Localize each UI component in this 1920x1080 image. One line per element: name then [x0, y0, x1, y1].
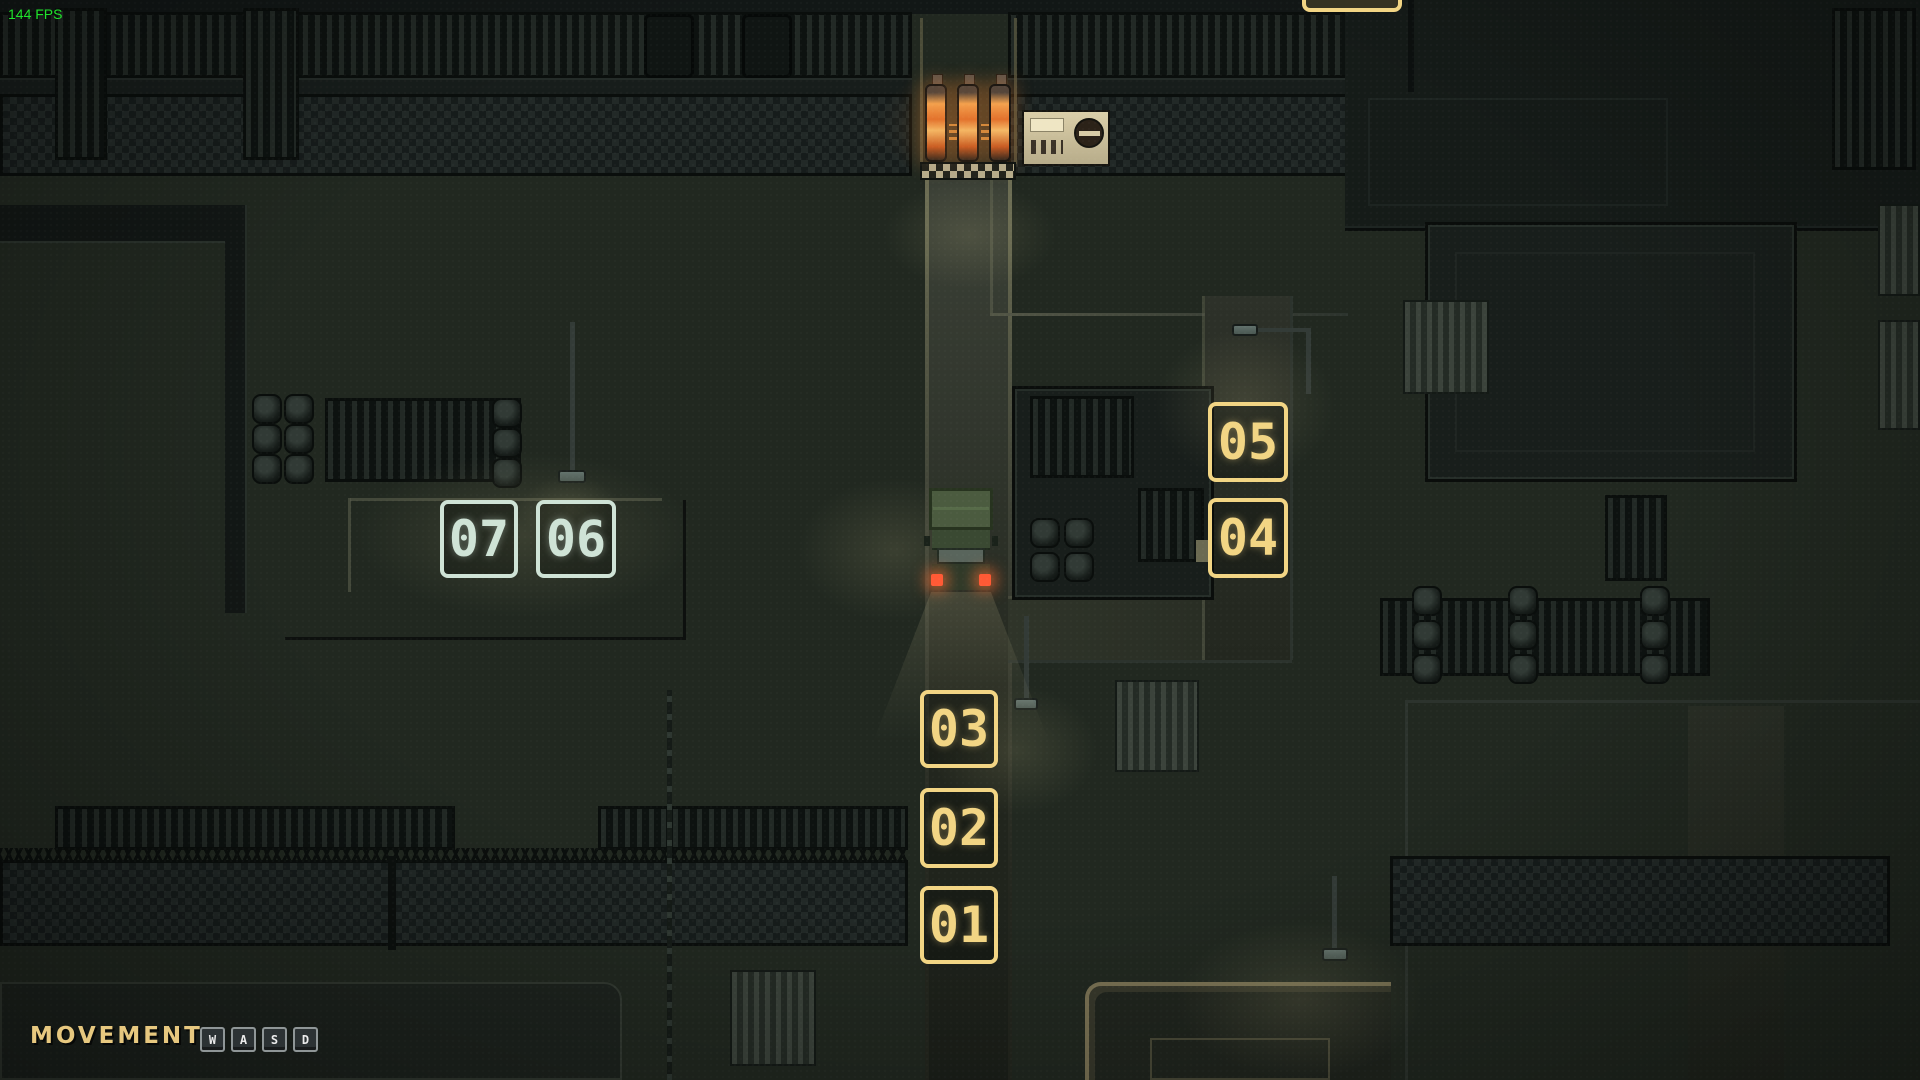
waypoint-label: 03: [929, 700, 989, 758]
top-fence-right: [1008, 12, 1348, 78]
truck-canopy-rib: [933, 507, 989, 510]
storage-cage: [1390, 856, 1890, 946]
barrel: [252, 454, 282, 484]
waypoint-label: 06: [546, 510, 606, 568]
utility-pole: [667, 690, 672, 1080]
barrel: [1064, 518, 1094, 548]
barrel: [252, 424, 282, 454]
barrel: [1640, 620, 1670, 650]
waypoint-marker-03: 03: [920, 690, 998, 768]
waypoint-marker-05: 05: [1208, 402, 1288, 482]
topright-inner-roof: [1368, 98, 1668, 206]
game-viewport[interactable]: 01 02 03 04 05 06 07 144 FPS MOVEMENT W …: [0, 0, 1920, 1080]
waypoint-label: 02: [929, 799, 989, 857]
right-building-inner: [1455, 252, 1755, 452]
corrugated-panel: [1878, 320, 1920, 430]
barrel: [284, 424, 314, 454]
barrel: [1640, 654, 1670, 684]
waypoint-marker-07: 07: [440, 500, 518, 578]
barrel: [1412, 620, 1442, 650]
barrel: [252, 394, 282, 424]
barrel: [1508, 620, 1538, 650]
top-chainlink-left: [0, 94, 912, 176]
bottom-fence: [598, 806, 908, 850]
truck-mirror: [992, 536, 998, 546]
fence-clamp-post: [644, 14, 694, 78]
truck-windshield: [937, 548, 985, 564]
corrugated-panel: [1878, 204, 1920, 296]
fence-post: [388, 856, 396, 950]
barrel: [1412, 654, 1442, 684]
pipe: [1408, 0, 1414, 92]
left-wall-vertical: [225, 205, 247, 613]
barrel: [1508, 586, 1538, 616]
topright-chimney: [1832, 8, 1916, 170]
truck-light-icon: [931, 574, 943, 586]
key-w: W: [200, 1027, 225, 1052]
barrel: [1640, 586, 1670, 616]
waypoint-label: 05: [1218, 413, 1278, 471]
right-yard-edge: [1407, 700, 1920, 703]
waypoint-marker-01: 01: [920, 886, 998, 964]
bottom-chainlink: [0, 860, 908, 946]
barrel: [1030, 552, 1060, 582]
depot-rack: [1030, 396, 1134, 478]
machine-valve-slot: [1079, 131, 1100, 136]
furnace-glow: [850, 50, 1050, 200]
truck-light-icon: [979, 574, 991, 586]
fps-counter: 144 FPS: [8, 6, 62, 22]
chimney-block: [55, 8, 107, 160]
key-d: D: [293, 1027, 318, 1052]
picket-fence: [730, 970, 816, 1066]
corrugated-panel: [1403, 300, 1489, 394]
small-rack: [1605, 495, 1667, 581]
truck-mirror: [924, 536, 930, 546]
key-s: S: [262, 1027, 287, 1052]
waypoint-marker-04: 04: [1208, 498, 1288, 578]
left-wall-horizontal: [0, 205, 243, 243]
barrel: [1412, 586, 1442, 616]
waypoint-label: 04: [1218, 509, 1278, 567]
barbed-wire: [0, 848, 908, 860]
movement-keys: W A S D: [200, 1027, 318, 1052]
barrel: [284, 394, 314, 424]
junction-curb: [1008, 660, 1292, 663]
barrel: [1064, 552, 1094, 582]
waypoint-label: 07: [449, 510, 509, 568]
waypoint-marker-partial: [1302, 0, 1402, 12]
truck-cab: [932, 530, 990, 550]
fence-clamp-post: [742, 14, 792, 78]
waypoint-label: 01: [929, 896, 989, 954]
waypoint-marker-02: 02: [920, 788, 998, 868]
movement-hint-label: MOVEMENT: [30, 1023, 203, 1049]
barrel: [1030, 518, 1060, 548]
player-truck: [929, 488, 993, 590]
barrel: [284, 454, 314, 484]
key-a: A: [231, 1027, 256, 1052]
chimney-block: [243, 8, 299, 160]
bottom-fence: [55, 806, 455, 850]
barrel: [1508, 654, 1538, 684]
waypoint-marker-06: 06: [536, 500, 616, 578]
